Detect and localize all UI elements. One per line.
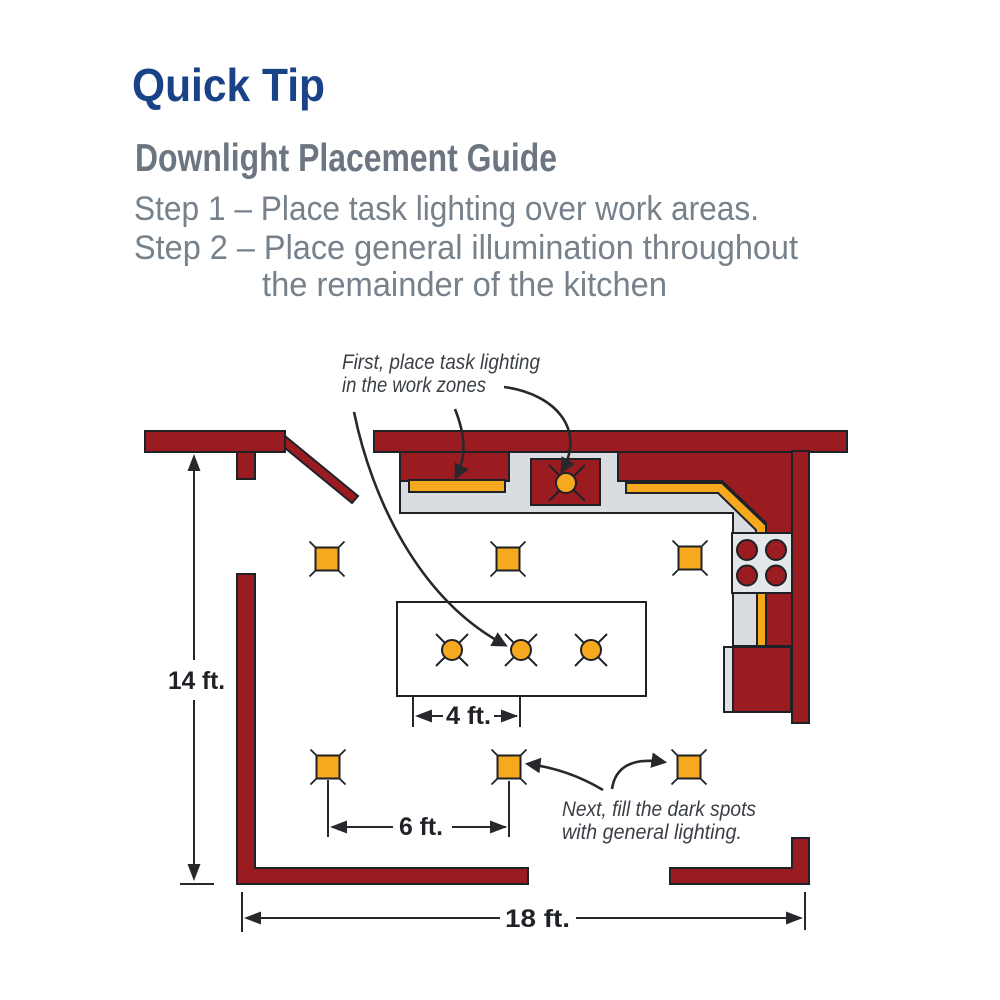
svg-text:in the work zones: in the work zones [342, 373, 486, 397]
svg-text:14 ft.: 14 ft. [168, 667, 225, 695]
svg-text:Step 2 – Place general illumin: Step 2 – Place general illumination thro… [134, 229, 799, 267]
svg-text:First, place task lighting: First, place task lighting [342, 350, 540, 374]
svg-text:the remainder of the kitchen: the remainder of the kitchen [262, 266, 667, 304]
svg-text:Next, fill the dark spots: Next, fill the dark spots [562, 797, 756, 821]
svg-text:with general lighting.: with general lighting. [562, 820, 742, 844]
svg-text:6 ft.: 6 ft. [399, 813, 443, 841]
svg-text:Step 1 – Place task lighting o: Step 1 – Place task lighting over work a… [134, 190, 759, 228]
svg-text:4 ft.: 4 ft. [446, 702, 491, 730]
svg-text:Downlight Placement Guide: Downlight Placement Guide [135, 137, 557, 180]
svg-text:18 ft.: 18 ft. [505, 905, 570, 933]
svg-text:Quick Tip: Quick Tip [132, 59, 325, 111]
